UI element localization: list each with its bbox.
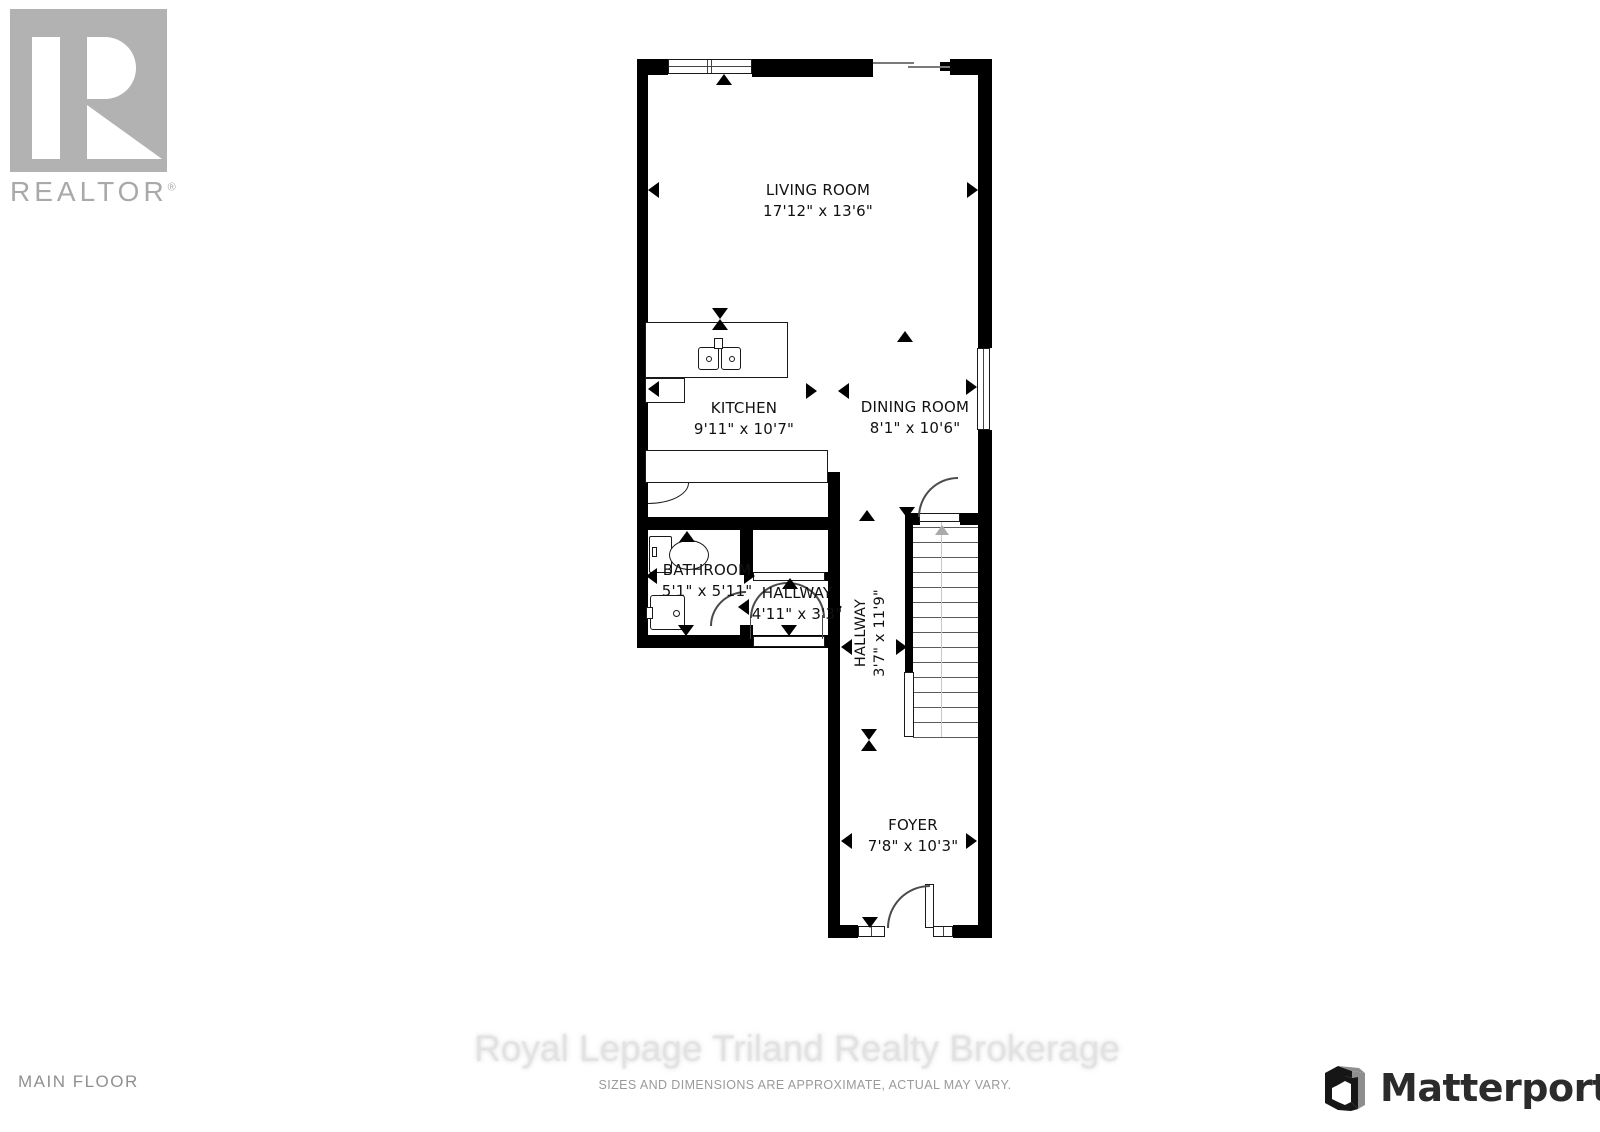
entry-sidelight bbox=[933, 926, 953, 937]
stair-tread bbox=[913, 722, 978, 723]
toilet-flush-button bbox=[652, 547, 657, 557]
dimension-marker bbox=[678, 625, 694, 636]
wall bbox=[828, 925, 858, 938]
dimension-marker bbox=[899, 507, 915, 518]
floorplan-page: REALTOR® bbox=[0, 0, 1600, 1132]
kitchen-counter-curve bbox=[648, 483, 689, 504]
wall bbox=[978, 59, 992, 348]
matterport-label: Matterport bbox=[1380, 1066, 1600, 1110]
sliding-door-panel bbox=[873, 62, 914, 64]
wall bbox=[740, 625, 753, 648]
stair-tread bbox=[913, 677, 978, 678]
window bbox=[977, 348, 990, 430]
room-name: DINING ROOM bbox=[861, 397, 969, 418]
stair-tread bbox=[913, 557, 978, 558]
wall bbox=[752, 59, 873, 77]
stair-tread bbox=[913, 647, 978, 648]
stairs-center-line bbox=[941, 519, 942, 737]
registered-mark: ® bbox=[168, 182, 176, 194]
dimension-marker bbox=[648, 182, 659, 198]
dimension-marker bbox=[897, 331, 913, 342]
sidelight-mullion bbox=[943, 927, 944, 936]
room-dimensions: 7'8" x 10'3" bbox=[868, 836, 959, 857]
dimension-marker bbox=[712, 308, 728, 319]
window-mullion bbox=[707, 60, 708, 73]
dimension-marker bbox=[861, 729, 877, 740]
dimension-marker bbox=[838, 383, 849, 399]
disclaimer-text: SIZES AND DIMENSIONS ARE APPROXIMATE, AC… bbox=[599, 1078, 1012, 1092]
stair-tread bbox=[913, 602, 978, 603]
wall bbox=[978, 430, 992, 938]
dimension-marker bbox=[806, 383, 817, 399]
room-label-hallway-vertical: HALLWAY 3'7" x 11'9" bbox=[852, 589, 890, 677]
window-mullion bbox=[669, 66, 751, 67]
dimension-marker bbox=[859, 510, 875, 521]
dimension-marker bbox=[967, 182, 978, 198]
stair-tread bbox=[913, 707, 978, 708]
room-name: BATHROOM bbox=[662, 560, 753, 581]
sink-drain bbox=[729, 356, 735, 362]
stair-tread bbox=[913, 692, 978, 693]
realtor-logo-icon bbox=[10, 9, 167, 172]
dimension-marker bbox=[861, 740, 877, 751]
dimension-marker bbox=[862, 917, 878, 928]
room-name: LIVING ROOM bbox=[763, 180, 873, 201]
room-dimensions: 4'11" x 3'3" bbox=[752, 604, 843, 625]
wall bbox=[828, 472, 840, 938]
realtor-word: REALTOR bbox=[10, 176, 168, 207]
dimension-marker bbox=[966, 379, 977, 395]
window-mullion bbox=[983, 349, 984, 429]
stair-tread bbox=[913, 737, 978, 738]
room-label-dining-room: DINING ROOM 8'1" x 10'6" bbox=[861, 397, 969, 439]
stair-tread bbox=[913, 572, 978, 573]
dimension-marker bbox=[712, 319, 728, 330]
vanity-handle bbox=[646, 607, 653, 619]
bathroom-faucet bbox=[673, 610, 680, 617]
room-dimensions: 17'12" x 13'6" bbox=[763, 201, 873, 222]
wall bbox=[637, 517, 840, 530]
dimension-marker bbox=[841, 833, 852, 849]
stairs-direction-arrow bbox=[935, 525, 949, 535]
room-name: HALLWAY bbox=[752, 583, 843, 604]
room-label-living-room: LIVING ROOM 17'12" x 13'6" bbox=[763, 180, 873, 222]
realtor-label: REALTOR® bbox=[10, 176, 176, 208]
room-name: HALLWAY bbox=[852, 589, 871, 677]
dimension-marker bbox=[716, 74, 732, 85]
entry-door-arc bbox=[887, 885, 930, 928]
sink-drain bbox=[706, 356, 712, 362]
stair-tread bbox=[913, 632, 978, 633]
dimension-marker bbox=[781, 625, 797, 636]
window bbox=[668, 59, 752, 74]
floor-label: MAIN FLOOR bbox=[18, 1072, 139, 1092]
brokerage-watermark: Royal Lepage Triland Realty Brokerage bbox=[474, 1028, 1120, 1070]
dimension-marker bbox=[841, 639, 852, 655]
stair-tread bbox=[913, 617, 978, 618]
matterport-logo-icon bbox=[1322, 1064, 1368, 1112]
room-dimensions: 3'7" x 11'9" bbox=[871, 589, 890, 677]
room-name: FOYER bbox=[868, 815, 959, 836]
room-label-hallway: HALLWAY 4'11" x 3'3" bbox=[752, 583, 843, 625]
stairs-door-arc bbox=[918, 477, 958, 517]
dimension-marker bbox=[896, 639, 907, 655]
stair-tread bbox=[913, 542, 978, 543]
sidelight-mullion bbox=[871, 927, 872, 936]
kitchen-faucet bbox=[714, 338, 723, 349]
dimension-marker bbox=[679, 531, 695, 542]
room-dimensions: 9'11" x 10'7" bbox=[694, 419, 794, 440]
room-name: KITCHEN bbox=[694, 398, 794, 419]
room-label-bathroom: BATHROOM 5'1" x 5'11" bbox=[662, 560, 753, 602]
stair-tread bbox=[913, 587, 978, 588]
room-label-kitchen: KITCHEN 9'11" x 10'7" bbox=[694, 398, 794, 440]
window-mullion bbox=[711, 60, 712, 73]
dimension-marker bbox=[648, 381, 659, 397]
stairs-handrail bbox=[904, 672, 914, 737]
wall bbox=[960, 513, 978, 525]
dimension-marker bbox=[646, 568, 657, 584]
matterport-logo: Matterport bbox=[1322, 1064, 1600, 1112]
room-dimensions: 5'1" x 5'11" bbox=[662, 581, 753, 602]
room-label-foyer: FOYER 7'8" x 10'3" bbox=[868, 815, 959, 857]
stair-tread bbox=[913, 662, 978, 663]
room-dimensions: 8'1" x 10'6" bbox=[861, 418, 969, 439]
kitchen-counter bbox=[645, 450, 828, 483]
sliding-door-panel bbox=[908, 66, 950, 68]
dimension-marker bbox=[966, 833, 977, 849]
hallway-opening-threshold bbox=[753, 636, 825, 647]
wall bbox=[953, 925, 992, 938]
